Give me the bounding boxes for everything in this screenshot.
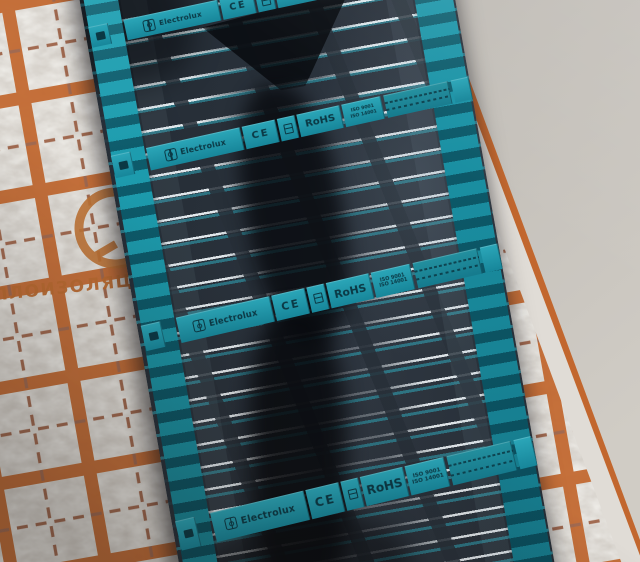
photo-heating-film-scene: ПЛОИЗОЛЯЦИЯ Д Electrolux [0, 0, 640, 562]
brand-text: Electrolux [179, 138, 226, 157]
package-icon [283, 122, 294, 134]
electrolux-logo-icon [164, 147, 178, 161]
package-icon [347, 488, 358, 500]
print-mark [148, 331, 159, 341]
brand-text: Electrolux [208, 307, 258, 328]
print-mark [95, 31, 105, 41]
package-icon [312, 292, 323, 304]
print-mark [118, 160, 129, 170]
package-icon [260, 0, 271, 6]
print-mark [183, 529, 194, 539]
brand-text: Electrolux [240, 503, 296, 527]
electrolux-logo-icon [192, 318, 206, 332]
electrolux-logo-icon [224, 516, 238, 530]
brand-text: Electrolux [158, 9, 202, 27]
electrolux-logo-icon [142, 18, 156, 32]
